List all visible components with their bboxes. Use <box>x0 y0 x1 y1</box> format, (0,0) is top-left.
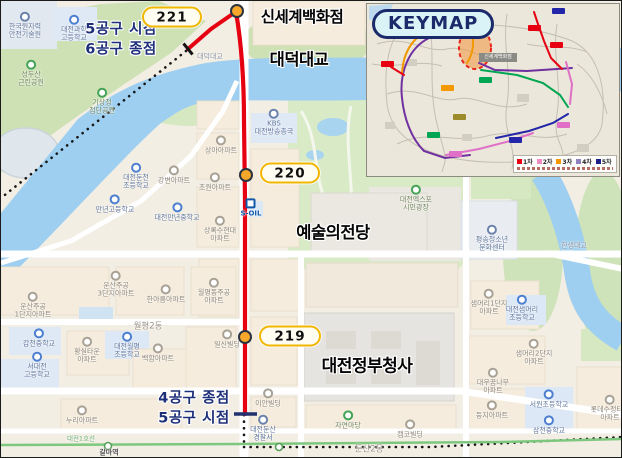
keymap-legend: 1차2차3차4차5차 <box>513 155 617 173</box>
metro-station <box>276 444 283 451</box>
keymap-inset: KEYMAP 신세계백화점 1차2차3차4차5차 <box>367 4 619 176</box>
keymap-legend-item: 3차 <box>556 157 572 166</box>
keymap-legend-item: 1차 <box>517 157 533 166</box>
dashed-section-line-northwest <box>1 51 186 198</box>
keymap-callout: 신세계백화점 <box>479 53 517 62</box>
keymap-legend-item: 5차 <box>596 157 612 166</box>
route-line-branch <box>188 13 234 49</box>
legend-color-swatch <box>556 159 561 164</box>
keymap-legend-note <box>517 167 613 170</box>
route-map-figure: 한국원자력안전기술원대전과학고등학교성두산근린공원기상청첨단공원대전둔천초등학교… <box>0 0 622 458</box>
keymap-legend-item: 2차 <box>537 157 553 166</box>
legend-color-swatch <box>596 159 601 164</box>
legend-color-swatch <box>517 159 522 164</box>
keymap-title-badge: KEYMAP <box>372 9 494 39</box>
metro-station-galma <box>105 443 112 450</box>
legend-color-swatch <box>537 159 542 164</box>
legend-color-swatch <box>576 159 581 164</box>
metro-line-1 <box>1 439 622 445</box>
keymap-legend-item: 4차 <box>576 157 592 166</box>
route-line-main <box>236 12 245 414</box>
